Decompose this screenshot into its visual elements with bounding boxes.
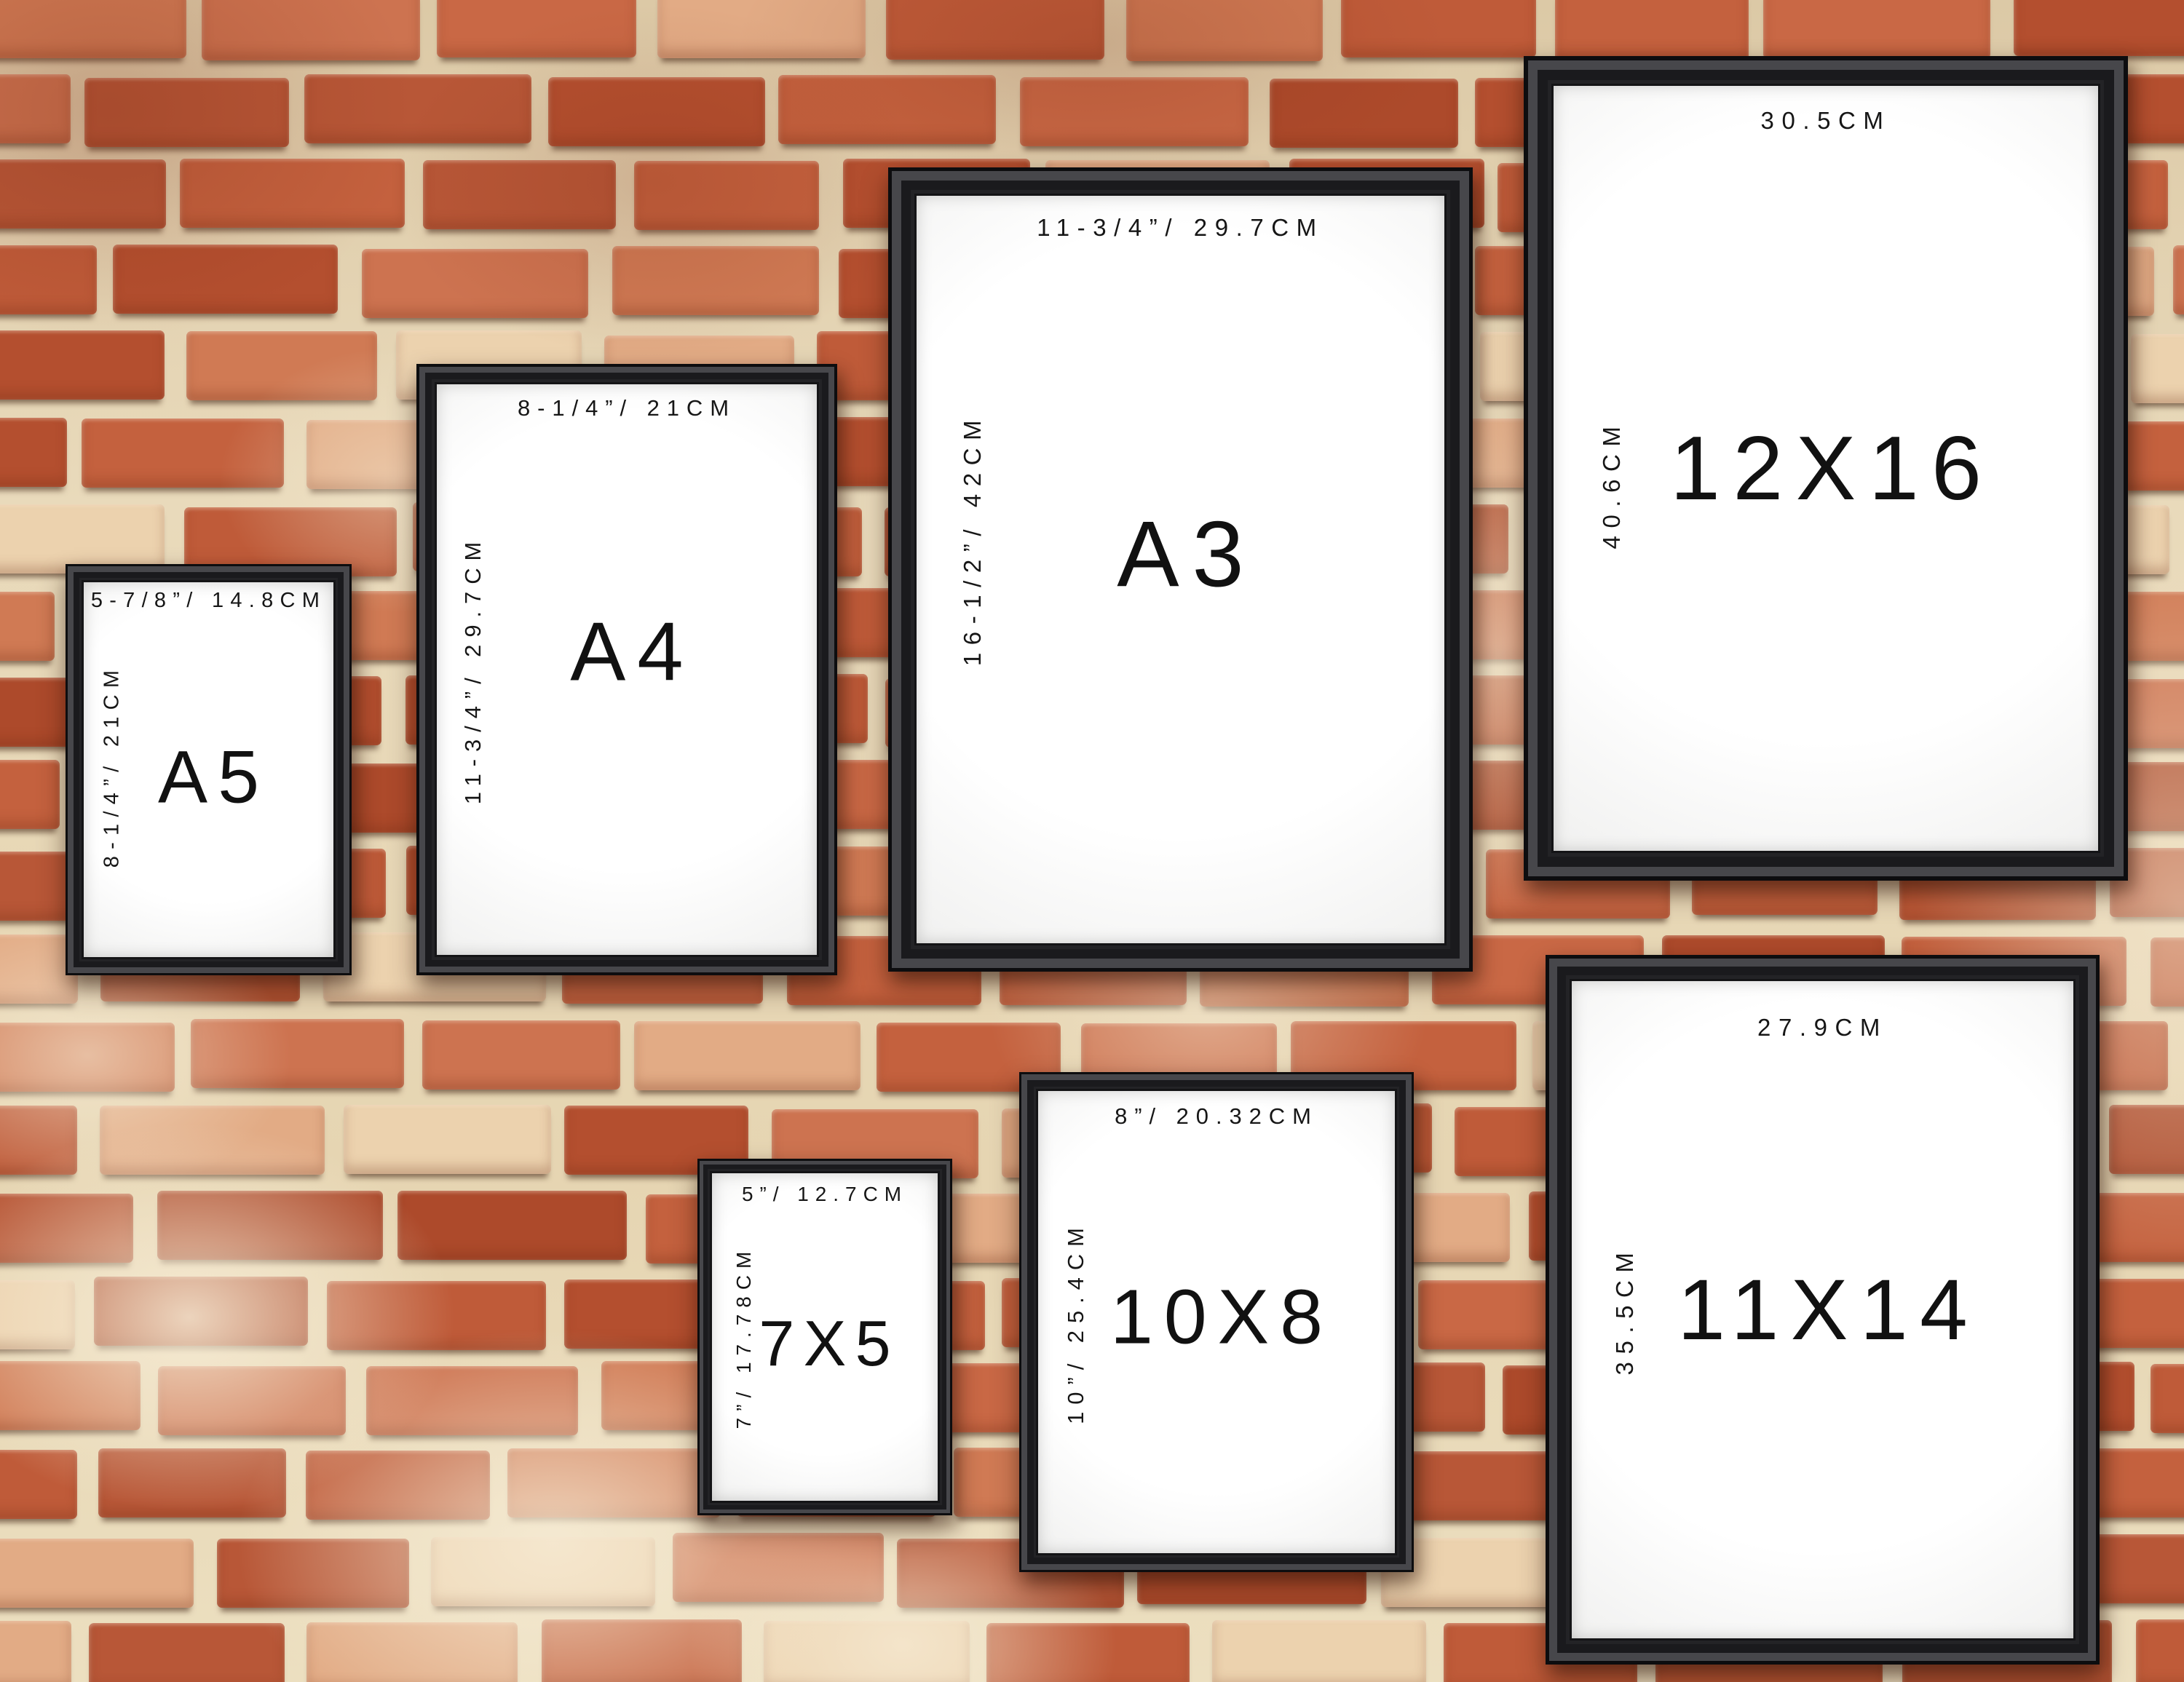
brick <box>0 330 165 400</box>
brick <box>98 1448 286 1518</box>
brick <box>437 0 636 57</box>
brick <box>2136 1619 2184 1682</box>
frame-11x14-width-label: 27.9CM <box>1757 1014 1888 1042</box>
frame-10x8: 8”/ 20.32CM 10”/ 25.4CM 10X8 <box>1019 1072 1414 1572</box>
brick <box>0 1539 194 1608</box>
frame-a4-height-label: 11-3/4”/ 29.7CM <box>460 535 486 805</box>
frame-10x8-size-name: 10X8 <box>1110 1274 1334 1362</box>
brick <box>113 245 338 314</box>
frame-a3-mat: 11-3/4”/ 29.7CM 16-1/2”/ 42CM A3 <box>914 194 1447 945</box>
brick <box>186 331 377 400</box>
frame-a4-size-name: A4 <box>570 605 695 700</box>
brick <box>673 1533 884 1602</box>
brick <box>778 75 996 144</box>
brick <box>2121 74 2184 143</box>
brick <box>327 1281 546 1350</box>
brick <box>542 1619 742 1682</box>
brick <box>1020 77 1249 146</box>
frame-a4: 8-1/4”/ 21CM 11-3/4”/ 29.7CM A4 <box>416 364 837 975</box>
brick <box>362 249 588 318</box>
brick <box>158 1366 346 1435</box>
brick <box>0 1361 141 1430</box>
brick <box>431 1537 655 1606</box>
frame-11x14-height-label: 35.5CM <box>1611 1245 1639 1375</box>
frame-7x5-mat: 5”/ 12.7CM 7”/ 17.78CM 7X5 <box>710 1171 940 1503</box>
brick <box>180 159 405 228</box>
brick <box>1126 0 1323 61</box>
brick <box>2173 245 2184 314</box>
brick <box>612 246 819 315</box>
brick <box>2109 1105 2184 1174</box>
brick <box>986 1623 1190 1682</box>
frame-a4-width-label: 8-1/4”/ 21CM <box>518 395 736 421</box>
frame-a3-width-label: 11-3/4”/ 29.7CM <box>1037 214 1324 242</box>
brick <box>634 161 819 230</box>
brick <box>886 0 1104 60</box>
brick <box>84 78 289 147</box>
brick <box>0 1106 77 1175</box>
frame-7x5-width-label: 5”/ 12.7CM <box>742 1183 908 1206</box>
frame-10x8-height-label: 10”/ 25.4CM <box>1063 1221 1089 1424</box>
brick <box>0 1621 71 1682</box>
brick <box>0 760 60 829</box>
brick <box>0 1280 75 1349</box>
frame-12x16: 30.5CM 40.6CM 12X16 <box>1524 56 2128 881</box>
frame-12x16-size-name: 12X16 <box>1670 417 1994 520</box>
brick <box>2151 937 2184 1007</box>
frame-7x5: 5”/ 12.7CM 7”/ 17.78CM 7X5 <box>697 1159 952 1515</box>
frame-a3: 11-3/4”/ 29.7CM 16-1/2”/ 42CM A3 <box>888 167 1473 972</box>
frame-a3-height-label: 16-1/2”/ 42CM <box>959 413 986 666</box>
brick <box>0 159 166 229</box>
frame-a5-size-name: A5 <box>158 734 269 820</box>
brick <box>82 418 284 488</box>
brick <box>191 1019 404 1088</box>
frame-a4-mat: 8-1/4”/ 21CM 11-3/4”/ 29.7CM A4 <box>435 382 819 957</box>
brick <box>2121 421 2184 491</box>
brick <box>507 1448 721 1518</box>
brick <box>764 1621 970 1682</box>
frame-size-comparison-poster: 5-7/8”/ 14.8CM 8-1/4”/ 21CM A5 8-1/4”/ 2… <box>0 0 2184 1682</box>
brick <box>217 1539 409 1608</box>
brick <box>2014 0 2184 56</box>
brick <box>306 1451 490 1520</box>
brick <box>2151 1364 2184 1433</box>
frame-10x8-width-label: 8”/ 20.32CM <box>1115 1103 1318 1130</box>
brick <box>0 1023 175 1092</box>
frame-a5-height-label: 8-1/4”/ 21CM <box>100 664 124 868</box>
frame-12x16-height-label: 40.6CM <box>1598 418 1626 549</box>
frame-a5-width-label: 5-7/8”/ 14.8CM <box>91 589 326 613</box>
brick <box>157 1191 383 1260</box>
frame-a5-mat: 5-7/8”/ 14.8CM 8-1/4”/ 21CM A5 <box>82 580 336 959</box>
frame-12x16-mat: 30.5CM 40.6CM 12X16 <box>1551 84 2100 853</box>
frame-7x5-size-name: 7X5 <box>759 1306 900 1381</box>
brick <box>0 418 67 487</box>
frame-12x16-width-label: 30.5CM <box>1761 107 1891 135</box>
brick <box>0 1450 77 1519</box>
brick <box>422 1020 620 1090</box>
brick <box>89 1623 285 1682</box>
brick <box>1763 0 1990 59</box>
brick <box>634 1021 860 1090</box>
brick <box>366 1366 578 1435</box>
brick <box>100 1106 325 1175</box>
brick <box>548 77 765 146</box>
brick <box>1341 0 1536 57</box>
brick <box>94 1277 308 1346</box>
brick <box>1212 1620 1426 1682</box>
frame-11x14: 27.9CM 35.5CM 11X14 <box>1546 955 2100 1665</box>
brick <box>1555 0 1749 60</box>
brick <box>657 0 866 58</box>
frame-10x8-mat: 8”/ 20.32CM 10”/ 25.4CM 10X8 <box>1036 1089 1397 1555</box>
brick <box>344 1105 551 1174</box>
brick <box>0 0 186 58</box>
brick <box>0 245 97 314</box>
frame-a5: 5-7/8”/ 14.8CM 8-1/4”/ 21CM A5 <box>66 564 352 975</box>
brick <box>423 160 616 229</box>
brick <box>0 1194 133 1263</box>
frame-a3-size-name: A3 <box>1117 501 1257 608</box>
brick <box>304 74 531 143</box>
brick <box>1270 79 1458 148</box>
brick <box>306 1622 518 1682</box>
frame-11x14-size-name: 11X14 <box>1677 1261 1979 1360</box>
frame-7x5-height-label: 7”/ 17.78CM <box>732 1245 756 1429</box>
brick <box>202 0 420 60</box>
brick <box>0 592 55 661</box>
brick <box>2131 334 2184 403</box>
frame-11x14-mat: 27.9CM 35.5CM 11X14 <box>1570 979 2076 1641</box>
brick <box>397 1191 627 1260</box>
brick <box>0 504 165 574</box>
brick <box>0 74 71 143</box>
